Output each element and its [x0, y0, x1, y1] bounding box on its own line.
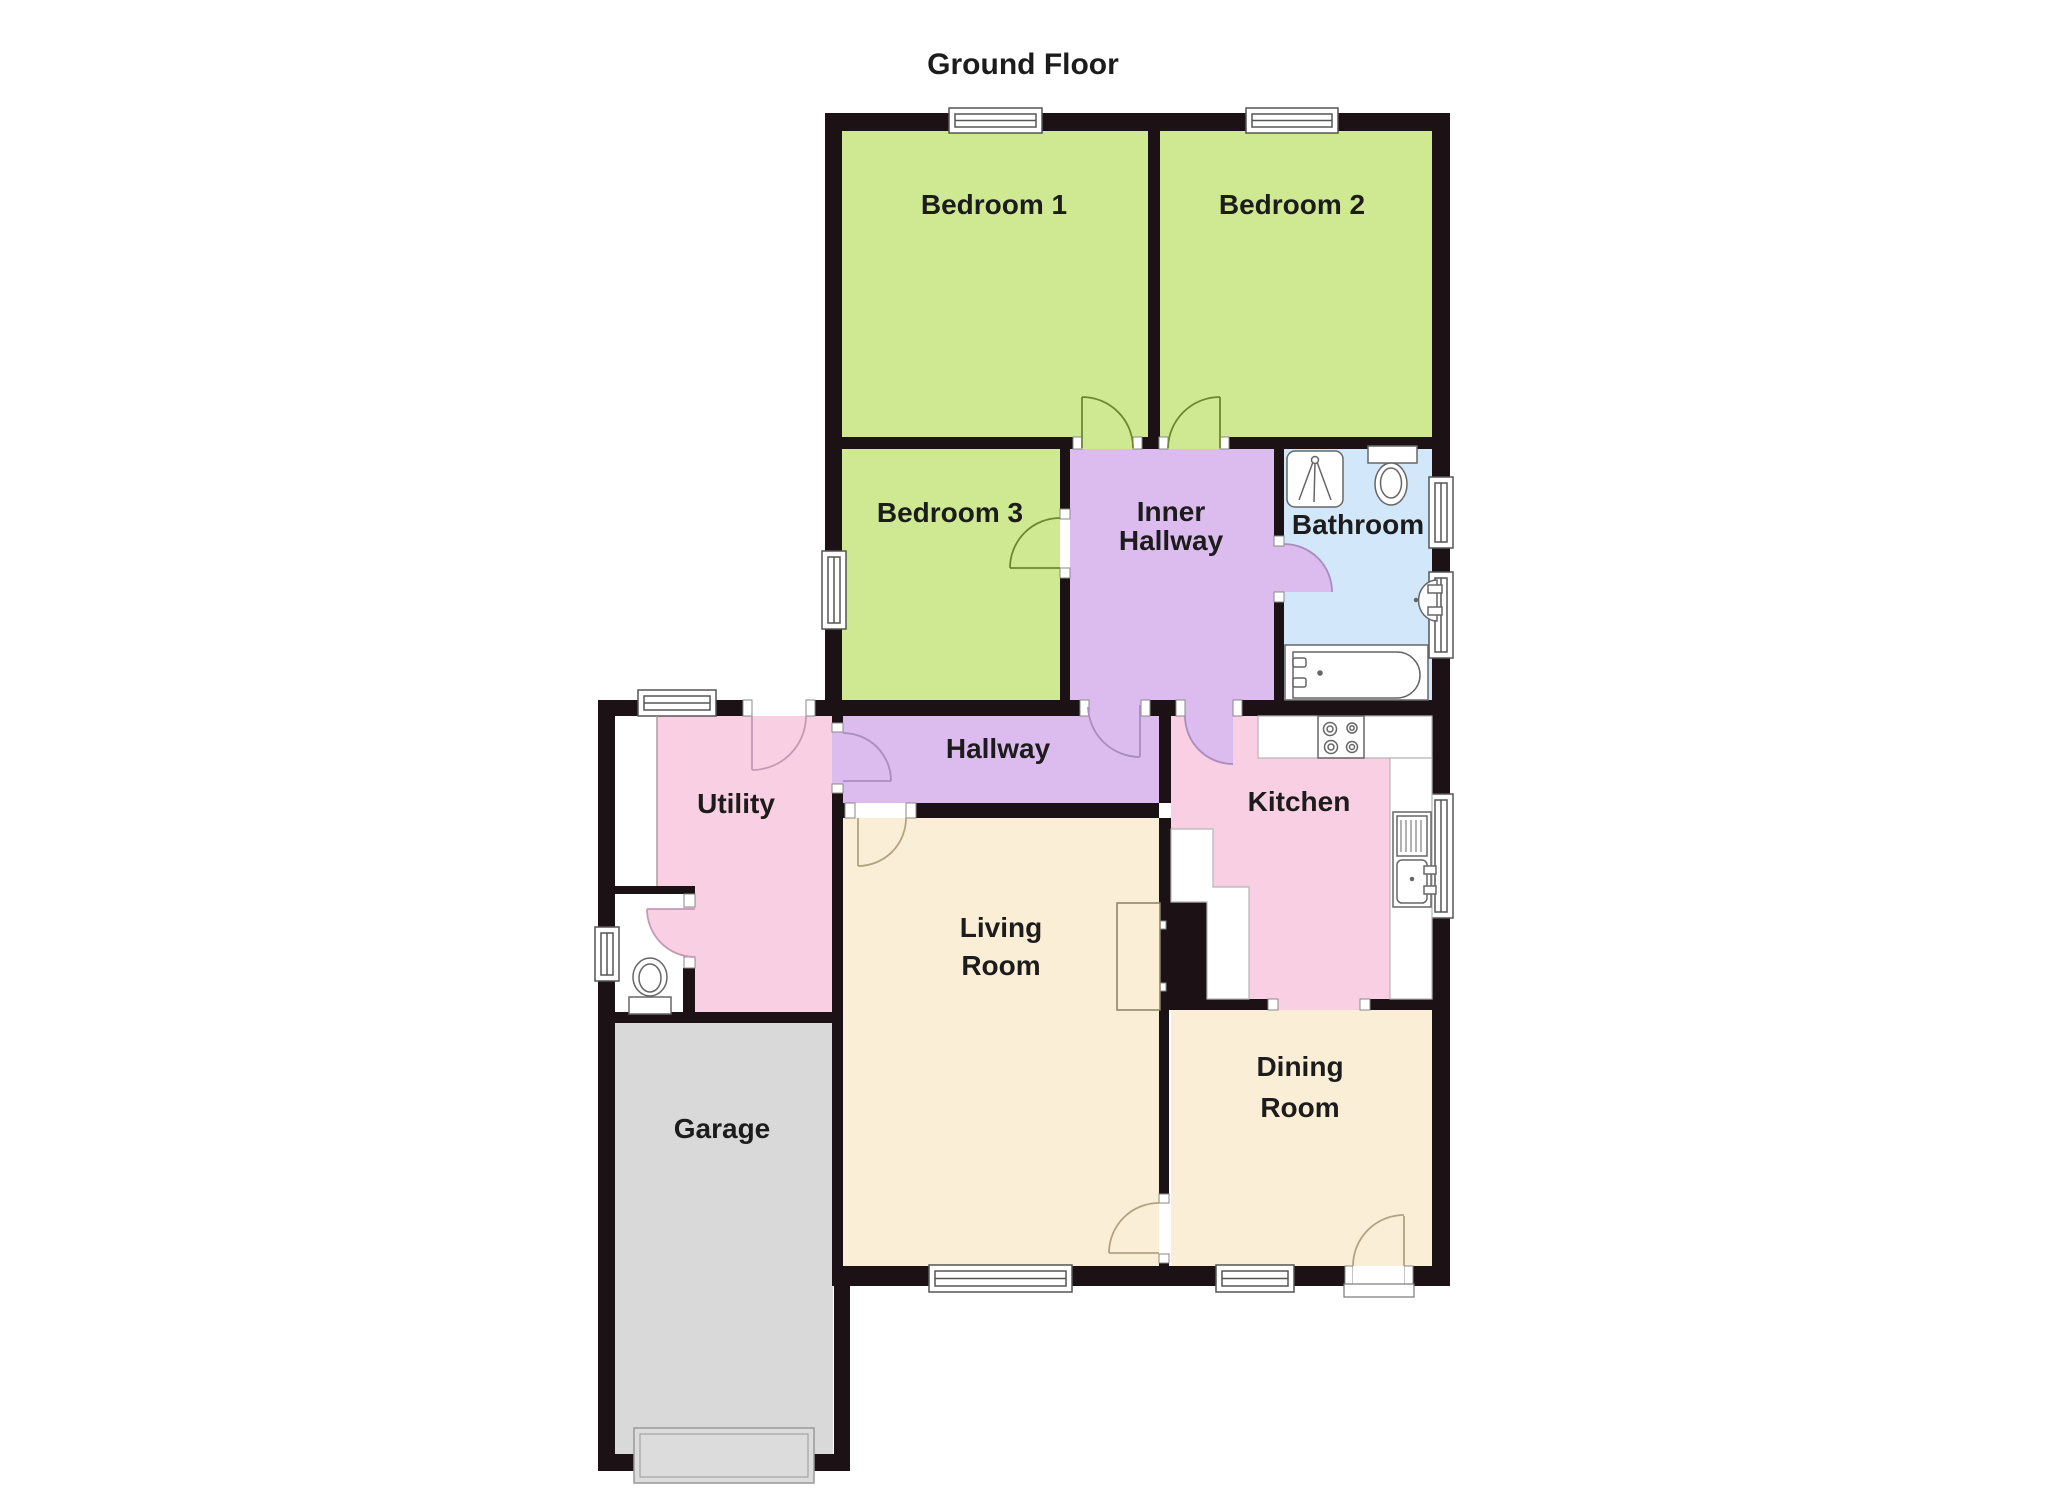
svg-text:Bedroom 1: Bedroom 1	[921, 189, 1067, 220]
svg-text:Utility: Utility	[697, 788, 775, 819]
svg-text:Bedroom 2: Bedroom 2	[1219, 189, 1365, 220]
svg-text:Inner: Inner	[1137, 496, 1206, 527]
svg-text:Dining: Dining	[1256, 1051, 1343, 1082]
svg-text:Hallway: Hallway	[946, 733, 1051, 764]
svg-text:Room: Room	[1260, 1092, 1339, 1123]
svg-text:Ground Floor: Ground Floor	[927, 48, 1119, 81]
svg-text:Hallway: Hallway	[1119, 525, 1224, 556]
svg-text:Bathroom: Bathroom	[1292, 509, 1424, 540]
svg-text:Living: Living	[960, 912, 1042, 943]
svg-text:Garage: Garage	[674, 1113, 771, 1144]
svg-text:Kitchen: Kitchen	[1248, 786, 1351, 817]
svg-text:Bedroom 3: Bedroom 3	[877, 497, 1023, 528]
svg-text:Room: Room	[961, 950, 1040, 981]
